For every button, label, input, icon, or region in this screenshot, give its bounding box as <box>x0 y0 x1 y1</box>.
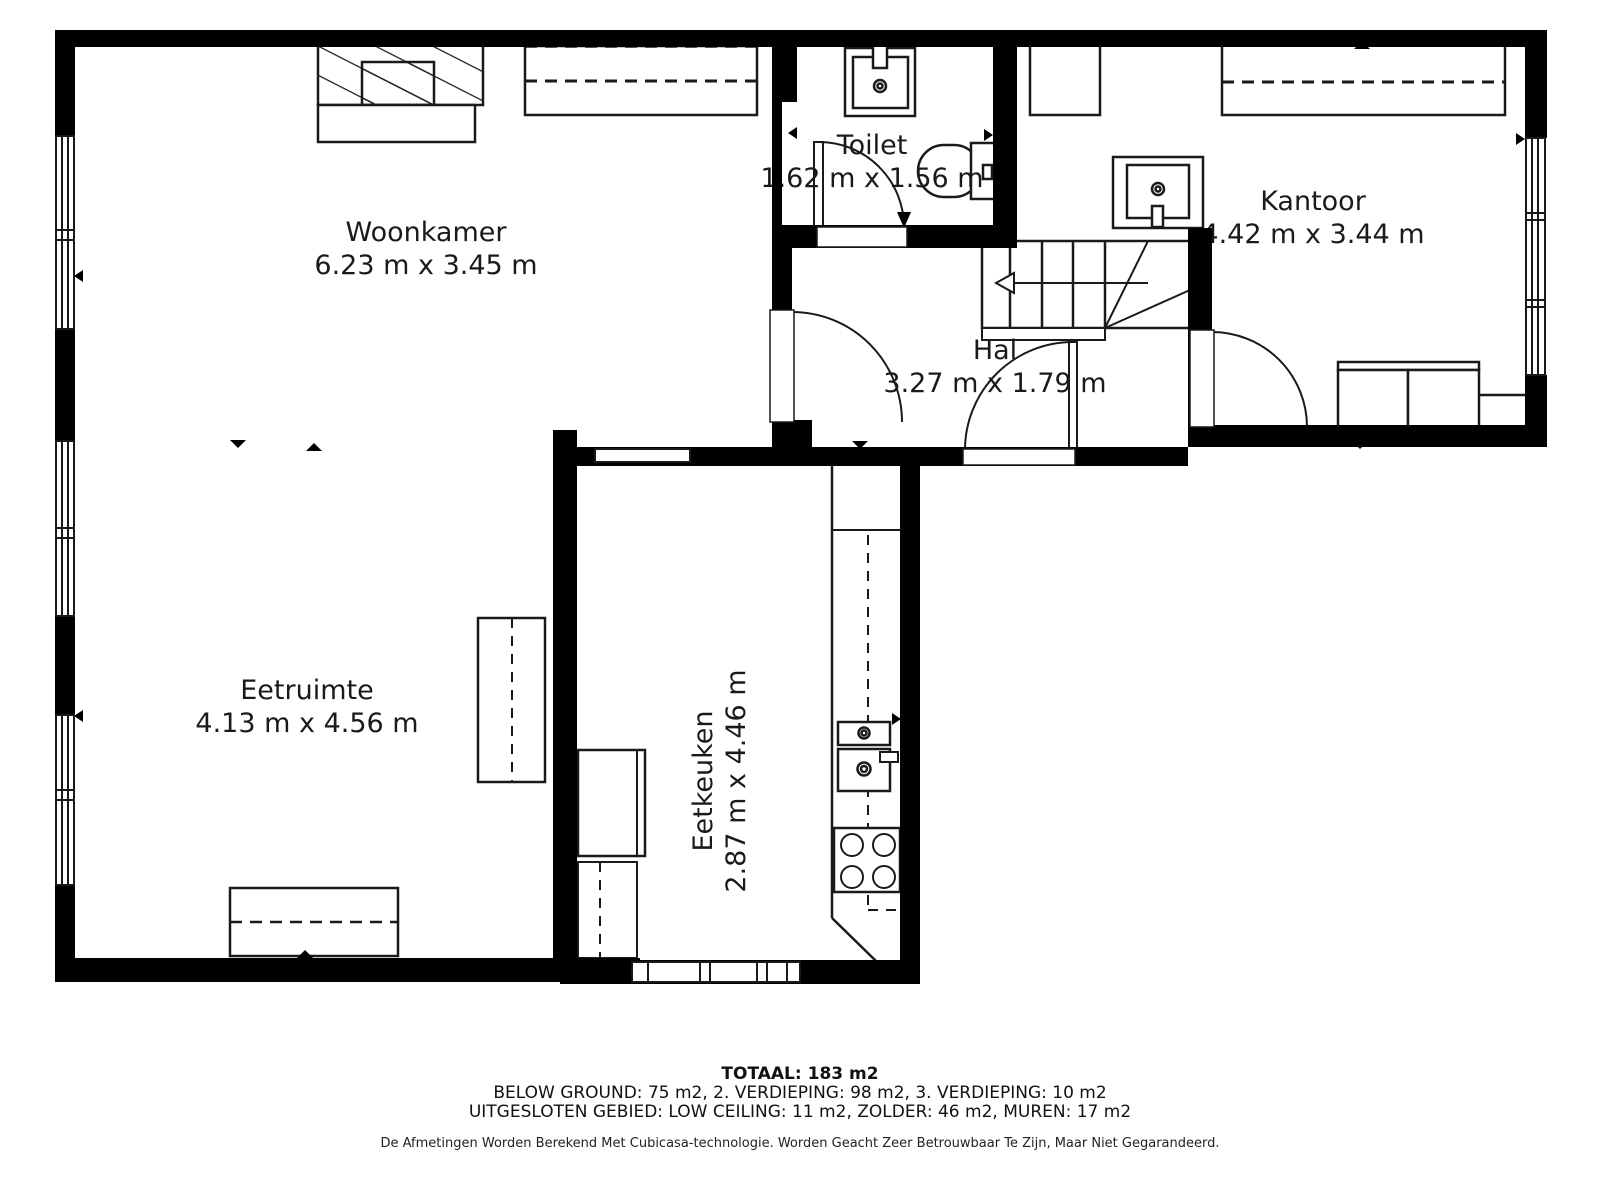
floorplan: Woonkamer 6.23 m x 3.45 m Toilet 1.62 m … <box>0 0 1600 1200</box>
walls <box>55 30 1547 984</box>
walls-and-windows <box>0 0 1600 1200</box>
windows <box>56 136 1545 982</box>
door-openings <box>770 227 1214 465</box>
